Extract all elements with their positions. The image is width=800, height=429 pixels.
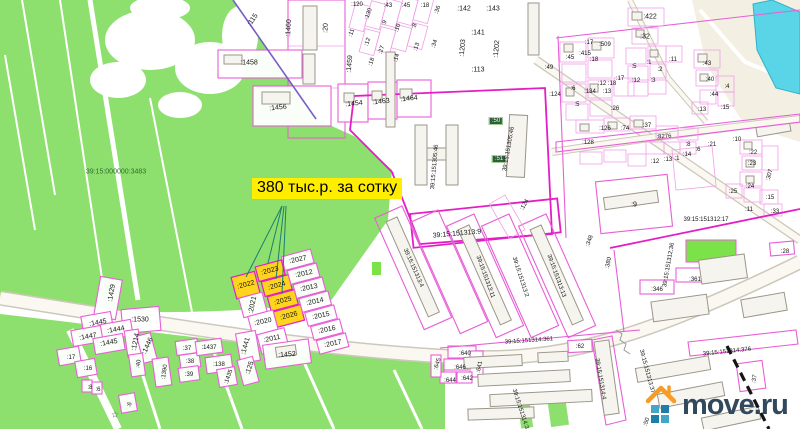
parcel-label: :3 [650, 78, 655, 84]
parcel-label: :8 [685, 142, 690, 148]
parcel-label: :22 [749, 150, 757, 156]
parcel-label: :21 [708, 142, 716, 148]
parcel-label: 39:15:000000:3483 [86, 169, 146, 176]
parcel-label: :28 [781, 249, 789, 255]
house-icon [645, 385, 679, 425]
parcel-label: :39 [185, 372, 193, 378]
parcel-label: :44 [710, 92, 718, 98]
parcel-label: :18 [421, 3, 429, 9]
parcel-label: :1458 [240, 60, 258, 67]
parcel-label: :4 [724, 84, 729, 90]
parcel-label: :17 [616, 76, 624, 82]
parcel-label: :346 [651, 287, 663, 293]
parcel-label: :24 [746, 184, 754, 190]
parcel-label: :50 [489, 117, 503, 125]
parcel-label: :32 [640, 34, 650, 41]
parcel-label: :14 [683, 152, 691, 158]
parcel-label: :43 [384, 3, 392, 9]
parcel-label: :8 [87, 385, 92, 391]
parcel-label: :141 [471, 30, 485, 37]
parcel-label: :49 [545, 65, 553, 71]
parcel-label: :126 [599, 126, 611, 132]
parcel-label: :15 [766, 195, 774, 201]
parcel-label: ☆ [111, 411, 119, 420]
parcel-label: :361 [689, 277, 701, 283]
parcel-label: :12 [632, 78, 640, 84]
parcel-label: :11 [745, 207, 753, 213]
parcel-label: :12 [598, 81, 606, 87]
parcel-label: :45 [402, 3, 410, 9]
map-canvas [0, 0, 800, 429]
parcel-label: :143 [486, 6, 500, 13]
parcel-label: :646 [454, 365, 466, 371]
parcel-label: :1 [646, 60, 651, 66]
parcel-label: :1437 [201, 345, 216, 351]
parcel-label: :10 [733, 137, 741, 143]
parcel-label: :37 [183, 346, 191, 352]
parcel-label: :1 [674, 156, 679, 162]
parcel-label: :40 [706, 77, 714, 83]
parcel-label: :124 [549, 92, 561, 98]
parcel-label: :128 [582, 140, 594, 146]
parcel-label: :1452 [278, 351, 296, 359]
parcel-label: :5 [574, 102, 579, 108]
parcel-label: :16 [84, 366, 92, 372]
parcel-label: :17 [585, 40, 593, 46]
parcel-label: :13 [664, 157, 672, 163]
moveru-wordmark: move.ru [682, 389, 788, 422]
parcel-label: :62 [576, 344, 584, 350]
parcel-label: :6 [695, 147, 700, 153]
parcel-label: :74 [621, 126, 629, 132]
parcel-label: :642 [461, 376, 473, 382]
parcel-label: :8276 [656, 133, 671, 140]
parcel-label: :37 [643, 123, 651, 129]
parcel-label: :6 [95, 387, 100, 393]
parcel-label: :6 [570, 86, 575, 92]
parcel-label: :12 [651, 159, 659, 165]
parcel-label: :640 [459, 351, 471, 357]
parcel-label: :38 [186, 359, 194, 365]
parcel-label: :20 [322, 23, 329, 33]
parcel-label: :138 [213, 362, 225, 368]
parcel-label: :26 [611, 106, 619, 112]
parcel-label: :25 [729, 189, 737, 195]
parcel-label: :2 [657, 67, 662, 73]
parcel-label: :23 [748, 161, 756, 167]
price-callout: 380 тыс.р. за сотку [252, 178, 402, 199]
parcel-label: :17 [67, 355, 75, 361]
parcel-label: :33 [771, 209, 779, 215]
parcel-label: :13 [603, 89, 611, 95]
parcel-label: :422 [643, 14, 657, 21]
parcel-label: :13 [698, 107, 706, 113]
parcel-label: :11 [669, 57, 677, 63]
moveru-watermark: move.ru [641, 383, 800, 429]
parcel-label: :113 [471, 67, 484, 74]
parcel-label: :5 [631, 64, 636, 70]
parcel-label: :142 [457, 6, 471, 13]
cadastral-map-image: 39:15:000000:3483:115:1460:20:120:130:43… [0, 0, 800, 429]
parcel-label: :120 [351, 2, 363, 8]
parcel-label: :43 [703, 61, 711, 67]
parcel-label: :134 [584, 89, 596, 95]
parcel-label: :45 [566, 55, 574, 61]
parcel-label: 39:15:151312:17 [683, 217, 728, 223]
parcel-label: :644 [444, 378, 456, 384]
parcel-label: :509 [599, 42, 611, 48]
parcel-label: :18 [590, 57, 598, 63]
parcel-label: :15 [721, 105, 729, 111]
parcel-label: :1460 [285, 19, 293, 37]
parcel-label: :1530 [131, 317, 149, 324]
parcel-label: :9 [631, 202, 637, 209]
